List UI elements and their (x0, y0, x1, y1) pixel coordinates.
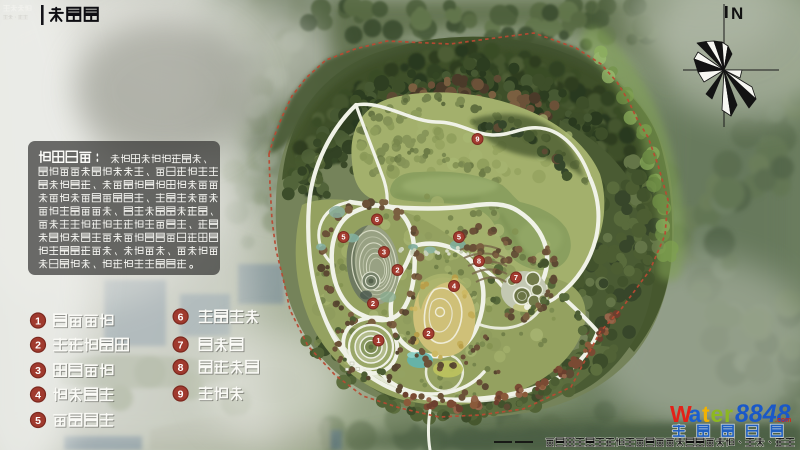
svg-text:2: 2 (35, 340, 41, 352)
svg-text:t: t (702, 401, 710, 427)
svg-text:8: 8 (477, 257, 481, 266)
svg-text:6: 6 (375, 215, 379, 224)
svg-text:6: 6 (178, 311, 184, 323)
svg-text:a: a (689, 401, 702, 427)
svg-text:2: 2 (395, 266, 399, 275)
svg-text:9: 9 (475, 135, 479, 144)
svg-text:4: 4 (35, 389, 41, 401)
svg-text:1: 1 (35, 315, 41, 327)
svg-text:5: 5 (457, 233, 461, 242)
svg-text:2: 2 (371, 299, 375, 308)
svg-text:3: 3 (35, 365, 41, 377)
svg-text:5: 5 (35, 415, 41, 427)
svg-text:2: 2 (426, 329, 430, 338)
svg-text:N: N (731, 4, 743, 23)
svg-text:7: 7 (514, 273, 518, 282)
svg-text:9: 9 (178, 388, 184, 400)
svg-text:8: 8 (178, 362, 184, 374)
svg-text:r: r (724, 401, 733, 427)
svg-text:3: 3 (382, 248, 386, 257)
svg-text:7: 7 (178, 339, 184, 351)
svg-text:1: 1 (376, 336, 380, 345)
svg-text:5: 5 (341, 233, 345, 242)
svg-text:.com: .com (775, 417, 791, 424)
svg-text:e: e (711, 401, 724, 427)
